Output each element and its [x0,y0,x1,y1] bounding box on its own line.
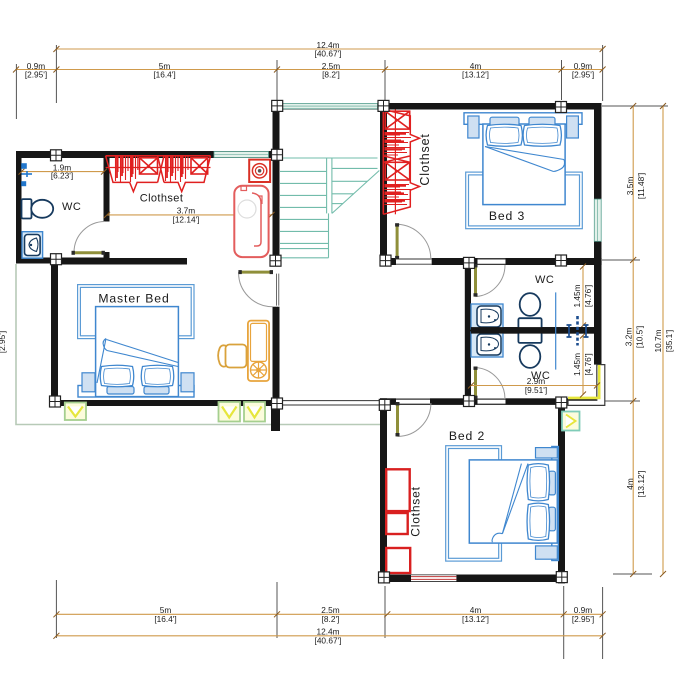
svg-text:3.5m: 3.5m [625,177,635,196]
svg-text:4m: 4m [625,478,635,490]
svg-text:[40.67']: [40.67'] [315,48,342,58]
svg-text:[8.2']: [8.2'] [322,69,340,79]
svg-text:Clothset: Clothset [140,192,184,204]
svg-text:[13.12']: [13.12'] [636,471,646,498]
svg-text:[35.1']: [35.1'] [664,330,674,352]
svg-text:[2.95']: [2.95'] [0,331,7,353]
svg-text:Bed 2: Bed 2 [449,429,485,443]
svg-text:[13.12']: [13.12'] [462,614,489,624]
svg-text:[4.76']: [4.76'] [583,353,593,375]
svg-text:Clothset: Clothset [418,133,432,185]
svg-text:[11.48']: [11.48'] [636,173,646,199]
svg-text:[13.12']: [13.12'] [462,69,489,79]
svg-text:Master Bed: Master Bed [98,292,169,306]
svg-text:[16.4']: [16.4'] [153,69,175,79]
svg-text:[6.23']: [6.23'] [51,171,73,181]
svg-text:3.2m: 3.2m [624,328,634,347]
svg-text:[2.95']: [2.95'] [25,69,47,79]
svg-text:Clothset: Clothset [409,486,423,536]
svg-text:1.45m: 1.45m [572,353,582,376]
svg-text:1.45m: 1.45m [572,284,582,307]
svg-text:[40.67']: [40.67'] [315,636,342,646]
svg-text:[10.5']: [10.5'] [635,326,645,348]
svg-text:[4.76']: [4.76'] [583,285,593,307]
svg-text:[2.95']: [2.95'] [572,614,594,624]
svg-text:[8.2']: [8.2'] [322,614,340,624]
svg-text:WC: WC [535,274,554,286]
svg-text:10.7m: 10.7m [653,329,663,352]
svg-text:[9.51']: [9.51'] [525,385,547,395]
svg-text:WC: WC [62,201,81,213]
svg-text:Bed 3: Bed 3 [489,209,525,223]
svg-text:[16.4']: [16.4'] [154,614,176,624]
svg-text:[2.95']: [2.95'] [572,69,594,79]
svg-text:[12.14']: [12.14'] [173,215,200,225]
